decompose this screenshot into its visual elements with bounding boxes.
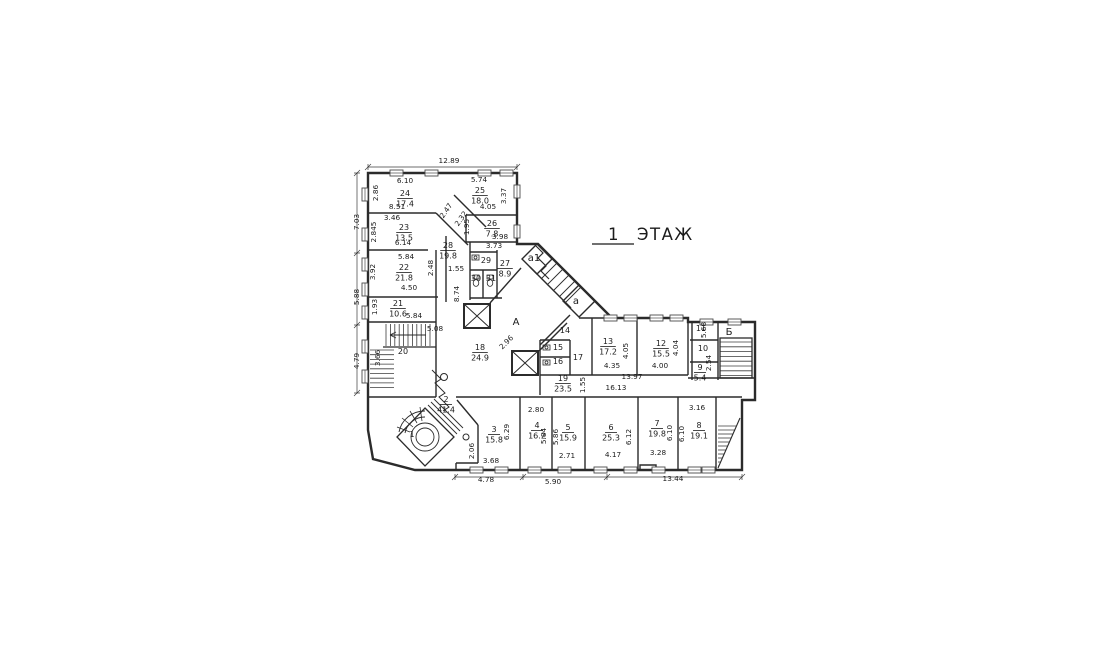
dimension-text: 4.35 xyxy=(604,361,620,370)
room-label: 31 xyxy=(486,274,496,283)
window-mark xyxy=(362,370,368,383)
room-area: 8.9 xyxy=(499,270,512,279)
window-mark xyxy=(362,340,368,353)
room-number: 29 xyxy=(481,256,491,265)
room-number: 30 xyxy=(471,274,481,283)
room-area: 23.5 xyxy=(554,385,572,394)
room-number: 14 xyxy=(560,326,570,335)
room-number: 7 xyxy=(654,419,659,428)
room-area: 10.6 xyxy=(389,310,407,319)
floor-number: 1 xyxy=(608,225,620,244)
stair-letter: Б xyxy=(726,327,733,338)
dimension-text: 3.37 xyxy=(499,188,508,205)
window-mark xyxy=(604,315,617,321)
dimension-text: 6.14 xyxy=(395,238,412,247)
room-number: 20 xyxy=(398,347,408,356)
dimension-text: 5.86 xyxy=(551,429,560,446)
dimension-text: 6.10 xyxy=(665,425,674,442)
window-mark xyxy=(594,467,607,473)
dimension-text: 6.10 xyxy=(677,426,686,443)
dimension-text: 2.71 xyxy=(559,451,575,460)
room-number: 10 xyxy=(698,344,708,353)
room-area: 19.8 xyxy=(439,252,457,261)
room-label: 20 xyxy=(398,347,408,356)
window-mark xyxy=(425,170,438,176)
dimension-text: 7.03 xyxy=(352,214,361,231)
room-number: 8 xyxy=(696,421,701,430)
room-number: 9 xyxy=(697,363,702,372)
dimension-text: 6.10 xyxy=(397,176,414,185)
room-number: 6 xyxy=(608,423,613,432)
room-label: 29 xyxy=(481,256,491,265)
room-number: 5 xyxy=(565,423,570,432)
dimension-text: 1.55 xyxy=(578,377,587,393)
window-mark xyxy=(362,188,368,201)
dimension-text: 2.86 xyxy=(371,185,380,202)
dimension-text: 3.16 xyxy=(689,403,706,412)
dimension-text: 4.00 xyxy=(652,361,669,370)
dimension-text: 6.29 xyxy=(502,424,511,441)
dimension-text: 16.13 xyxy=(606,383,627,392)
window-mark xyxy=(362,306,368,319)
dimension-text: 5.84 xyxy=(398,252,415,261)
dimension-text: 5.88 xyxy=(352,289,361,306)
room-number: 18 xyxy=(475,343,485,352)
room-area: 15.8 xyxy=(485,436,503,445)
floorplan-drawing: 1 ЭТАЖ 2417.42518.02313.5267.82819.82221… xyxy=(0,0,1120,658)
window-mark xyxy=(362,228,368,241)
room-area: 19.8 xyxy=(648,430,666,439)
room-number: 28 xyxy=(443,241,453,250)
floor-title: 1 ЭТАЖ xyxy=(592,225,694,244)
dimension-text: 5.74 xyxy=(471,175,488,184)
room-area: 21.8 xyxy=(395,274,413,283)
dimension-text: 12.89 xyxy=(439,156,460,165)
room-number: 16 xyxy=(553,357,563,366)
dimension-text: 8.74 xyxy=(452,286,461,303)
window-mark xyxy=(652,467,665,473)
room-label: 16 xyxy=(553,357,563,366)
room-number: 27 xyxy=(500,259,510,268)
room-label: 30 xyxy=(471,274,481,283)
dimension-text: 4.50 xyxy=(401,283,418,292)
window-mark xyxy=(624,315,637,321)
dimension-text: 4.04 xyxy=(671,340,680,357)
dimension-text: 3.28 xyxy=(650,448,667,457)
room-area: 25.3 xyxy=(602,434,620,443)
dimension-text: 5.84 xyxy=(539,428,548,445)
room-number: 31 xyxy=(486,274,496,283)
dimension-text: 4.05 xyxy=(480,202,496,211)
floor-word: ЭТАЖ xyxy=(637,225,694,244)
dimension-text: 4.17 xyxy=(605,450,622,459)
window-mark xyxy=(500,170,513,176)
room-number: 24 xyxy=(400,189,410,198)
dimension-text: 2.80 xyxy=(528,405,545,414)
room-area: 5.4 xyxy=(694,374,707,383)
window-mark xyxy=(728,319,741,325)
room-label: 10 xyxy=(698,344,708,353)
room-label: 14 xyxy=(560,326,570,335)
floorplan-page: 1 ЭТАЖ 2417.42518.02313.5267.82819.82221… xyxy=(0,0,1120,658)
window-mark xyxy=(528,467,541,473)
dimension-text: 1.55 xyxy=(448,264,464,273)
room-number: 17 xyxy=(573,353,583,362)
dimension-text: 6.12 xyxy=(624,429,633,445)
room-number: 19 xyxy=(558,374,568,383)
room-number: 15 xyxy=(553,343,563,352)
window-mark xyxy=(670,315,683,321)
room-number: 21 xyxy=(393,299,403,308)
dimension-text: 4.05 xyxy=(621,343,630,359)
dimension-text: 3.66 xyxy=(373,350,382,367)
window-mark xyxy=(470,467,483,473)
window-mark xyxy=(702,467,715,473)
stair-letter: А xyxy=(513,317,520,328)
room-area: 17.2 xyxy=(599,348,617,357)
room-label: 15 xyxy=(553,343,563,352)
stair-letter: а xyxy=(573,296,579,307)
dimension-text: 4.78 xyxy=(478,475,495,484)
room-area: 41.4 xyxy=(437,406,455,415)
dimension-text: 1.95 xyxy=(462,219,471,235)
window-mark xyxy=(558,467,571,473)
window-mark xyxy=(495,467,508,473)
dimension-text: 5.08 xyxy=(427,324,444,333)
dimension-text: 3.68 xyxy=(483,456,500,465)
room-number: 22 xyxy=(399,263,409,272)
dimension-text: 13.97 xyxy=(622,372,643,381)
stair-letter: а1 xyxy=(528,253,541,264)
room-number: 3 xyxy=(491,425,496,434)
room-number: 25 xyxy=(475,186,485,195)
window-mark xyxy=(624,467,637,473)
room-label: 1 xyxy=(409,430,414,439)
room-number: 2 xyxy=(443,395,448,404)
room-area: 24.9 xyxy=(471,354,489,363)
window-mark xyxy=(514,185,520,198)
room-area: 15.9 xyxy=(559,434,577,443)
room-number: 23 xyxy=(399,223,409,232)
room-number: 1 xyxy=(409,430,414,439)
dimension-text: 2.54 xyxy=(704,355,713,372)
dimension-text: 5.68 xyxy=(699,322,708,339)
dimension-text: 4.79 xyxy=(352,353,361,370)
dimension-text: 2.48 xyxy=(426,260,435,277)
dimension-text: 3.98 xyxy=(492,232,509,241)
dimension-text: 5.84 xyxy=(406,311,423,320)
room-number: 12 xyxy=(656,339,666,348)
room-number: 13 xyxy=(603,337,613,346)
dimension-text: 5.90 xyxy=(545,477,562,486)
dimension-text: 2.06 xyxy=(467,443,476,460)
window-mark xyxy=(514,225,520,238)
window-mark xyxy=(650,315,663,321)
room-area: 19.1 xyxy=(690,432,708,441)
dimension-text: 3.73 xyxy=(486,241,503,250)
dimension-text: 1.93 xyxy=(370,299,379,316)
room-area: 15.5 xyxy=(652,350,670,359)
room-number: 26 xyxy=(487,219,497,228)
dimension-text: 2.845 xyxy=(369,222,378,243)
dimension-text: 8.51 xyxy=(389,202,405,211)
room-label: 17 xyxy=(573,353,583,362)
dimension-text: 3.46 xyxy=(384,213,401,222)
window-mark xyxy=(688,467,701,473)
window-mark xyxy=(362,283,368,296)
dimension-text: 3.92 xyxy=(368,264,377,280)
dimension-text: 13.44 xyxy=(663,474,684,483)
